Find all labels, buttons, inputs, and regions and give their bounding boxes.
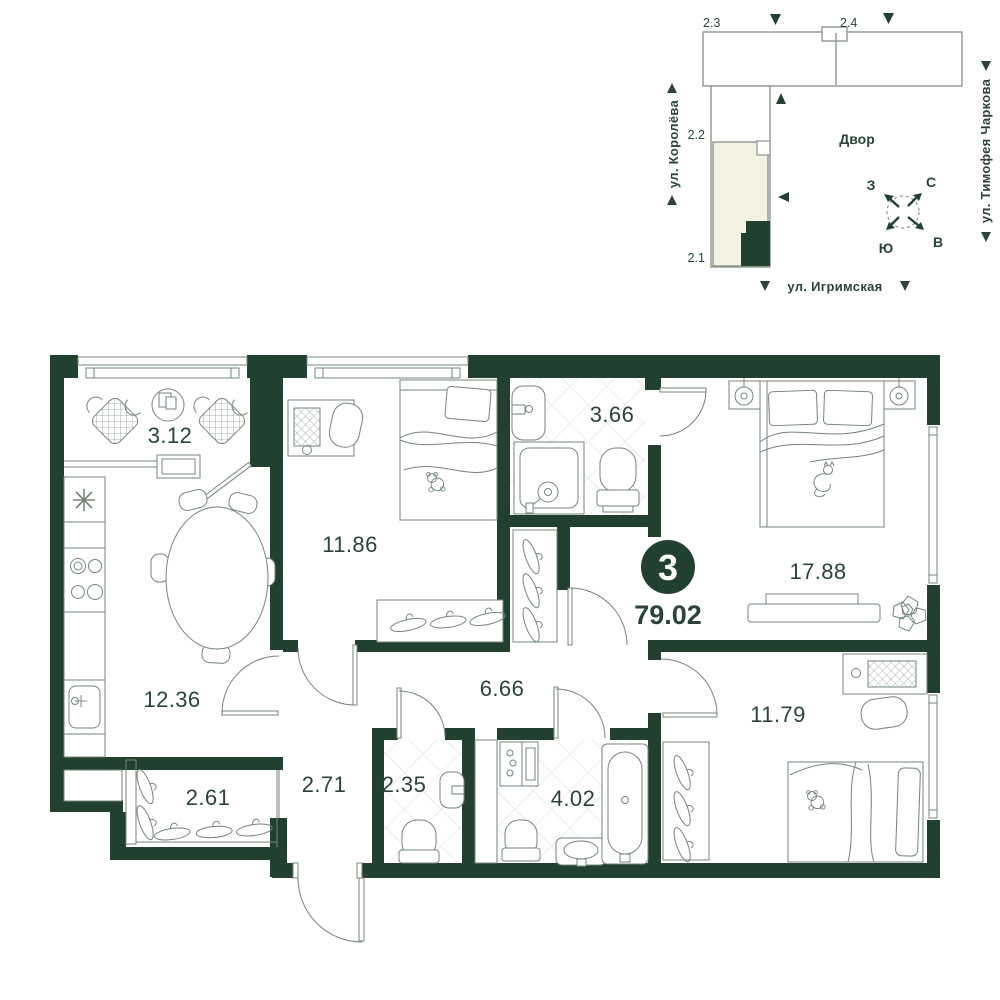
wall-niche	[64, 770, 122, 801]
courtyard-label: Двор	[839, 131, 875, 147]
room-area-label-bedroom-2: 11.79	[750, 702, 805, 727]
window	[307, 357, 468, 378]
coffee-table-icon	[152, 389, 184, 421]
site-section-label: 2.4	[840, 16, 857, 30]
room-area-label-corridor: 2.71	[302, 772, 346, 797]
arrow-up-icon	[667, 83, 677, 93]
stove-icon	[71, 559, 103, 600]
door	[222, 656, 279, 715]
arrow-down-icon	[981, 61, 991, 71]
bed-icon	[760, 381, 884, 527]
room-area-label-hallway: 6.66	[480, 676, 524, 701]
wardrobe-icon	[663, 742, 709, 863]
bed-icon	[400, 380, 497, 520]
door	[554, 687, 605, 738]
floorplan-page: 2.3 2.4 2.2 2.1 Двор	[0, 0, 1000, 1000]
wardrobe-icon	[377, 600, 506, 642]
window	[929, 695, 937, 818]
street-name: ул. Королёва	[666, 99, 681, 188]
street-label-left: ул. Королёва	[666, 83, 681, 205]
arrow-left-icon	[778, 192, 789, 202]
room-area-label-wardrobe: 2.61	[186, 785, 230, 810]
arrow-down-icon	[760, 281, 770, 291]
loggia-partition-window	[64, 455, 200, 478]
door	[397, 688, 445, 738]
street-name: ул. Игримская	[787, 279, 882, 294]
dining-table-icon	[151, 488, 275, 664]
arrow-down-icon	[770, 14, 781, 25]
compass-north-label: С	[926, 174, 936, 190]
nightstand-icon	[884, 378, 915, 409]
armchair-icon	[79, 381, 145, 447]
room-area-label-bedroom-1: 11.86	[322, 532, 377, 557]
vent-asterisk-icon	[73, 489, 95, 511]
room-area-label-bathroom-2: 4.02	[551, 786, 595, 811]
site-plan: 2.3 2.4 2.2 2.1 Двор	[666, 13, 993, 294]
plant-icon	[893, 596, 926, 631]
window	[78, 357, 247, 378]
toilet-icon	[597, 448, 639, 512]
bed-icon	[788, 762, 923, 862]
vent-shaft	[475, 740, 497, 863]
kitchen-sink-icon	[69, 686, 100, 728]
arrow-down-icon	[883, 13, 894, 24]
arrow-down-icon	[981, 232, 991, 242]
bathroom-sink-icon	[512, 386, 545, 440]
room-area-label-wc: 2.35	[382, 772, 426, 797]
entrance-door-icon	[293, 863, 364, 942]
nightstand-icon	[729, 378, 760, 409]
compass-south-label: Ю	[879, 240, 893, 256]
site-section-label: 2.3	[703, 16, 720, 30]
compass-icon: З С Ю В	[867, 174, 943, 256]
room-area-label-kitchen: 12.36	[143, 687, 200, 712]
compass-east-label: В	[933, 234, 943, 250]
arrow-up-icon	[776, 93, 786, 104]
door	[661, 659, 717, 717]
tv-stand-icon	[748, 594, 880, 622]
arrow-down-icon	[900, 281, 910, 291]
arrow-up-icon	[667, 195, 677, 205]
room-area-label-master: 17.88	[789, 559, 846, 584]
rooms-count-value: 3	[658, 547, 678, 588]
armchair-icon	[186, 381, 252, 447]
door	[568, 588, 627, 645]
toilet-icon	[502, 820, 540, 861]
street-label-right: ул. Тимофея Чаркова	[978, 61, 993, 242]
bathroom-sink-icon	[556, 838, 606, 866]
floor-plan: 3.12 11.86 3.66 17.88 12.36 6.66 2.71 2.…	[50, 355, 940, 942]
shower-icon	[514, 442, 584, 514]
desk-icon	[843, 654, 927, 694]
wardrobe-icon	[513, 530, 557, 643]
total-area-value: 79.02	[634, 600, 702, 630]
street-label-bottom: ул. Игримская	[760, 279, 910, 294]
compass-west-label: З	[867, 177, 876, 193]
toilet-icon	[399, 820, 439, 863]
washing-machine-icon	[500, 742, 538, 786]
door	[298, 645, 357, 705]
bathtub-icon	[602, 744, 648, 864]
rooms-count-badge: 3 79.02	[634, 540, 702, 630]
door	[660, 388, 706, 436]
room-area-label-loggia: 3.12	[148, 423, 192, 448]
site-section-notch	[757, 141, 770, 155]
room-area-label-bathroom-1: 3.66	[590, 402, 634, 427]
site-section-label: 2.1	[688, 251, 705, 265]
office-chair-icon	[859, 695, 909, 731]
street-name: ул. Тимофея Чаркова	[978, 78, 993, 223]
site-section-label: 2.2	[688, 128, 705, 142]
window	[929, 427, 937, 583]
floorplan-canvas: 2.3 2.4 2.2 2.1 Двор	[0, 0, 1000, 1000]
bathroom-sink-icon	[440, 772, 464, 808]
